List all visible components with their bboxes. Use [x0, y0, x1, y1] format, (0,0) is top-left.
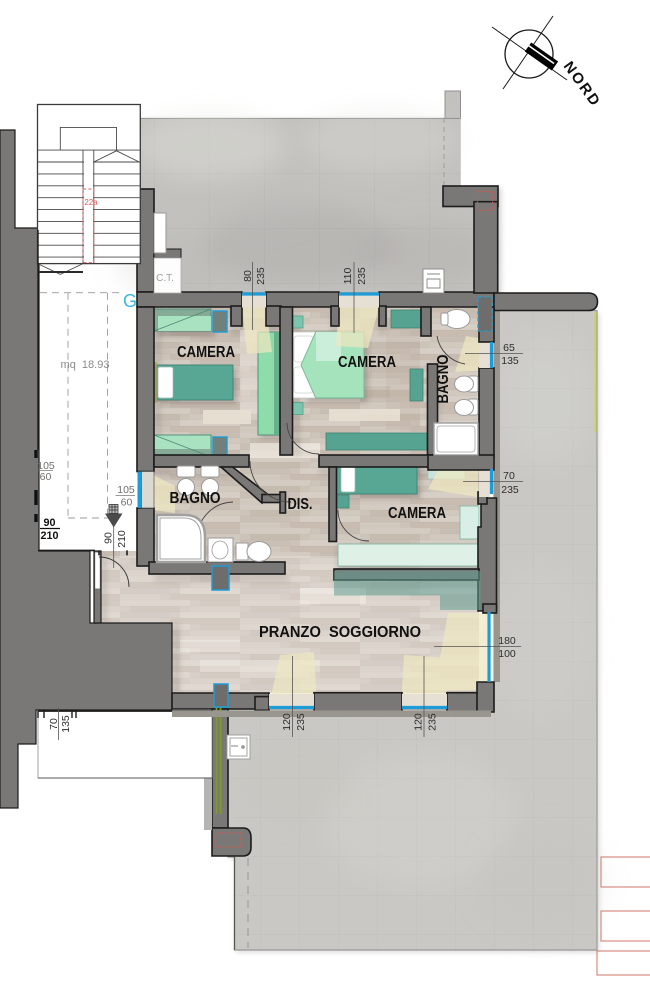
svg-text:135: 135: [60, 715, 72, 733]
svg-text:105: 105: [117, 484, 135, 496]
svg-text:60: 60: [121, 497, 133, 509]
svg-text:BAGNO: BAGNO: [170, 490, 221, 507]
svg-text:210: 210: [40, 530, 58, 542]
svg-text:235: 235: [427, 713, 439, 731]
svg-text:110: 110: [342, 267, 354, 284]
svg-text:65: 65: [503, 342, 515, 354]
svg-text:G: G: [123, 291, 137, 311]
svg-text:BAGNO: BAGNO: [435, 355, 452, 404]
svg-text:CAMERA: CAMERA: [338, 354, 396, 371]
svg-text:120: 120: [281, 713, 293, 731]
svg-text:C.T.: C.T.: [156, 273, 174, 284]
svg-text:235: 235: [356, 267, 368, 285]
svg-text:90: 90: [103, 532, 115, 544]
svg-text:135: 135: [501, 355, 519, 367]
svg-text:180: 180: [498, 635, 516, 647]
svg-text:70: 70: [503, 470, 515, 482]
svg-text:120: 120: [413, 713, 425, 731]
svg-text:60: 60: [40, 471, 52, 483]
svg-text:CAMERA: CAMERA: [388, 505, 446, 522]
svg-text:235: 235: [295, 713, 307, 731]
svg-text:mq 18.93: mq 18.93: [61, 359, 110, 371]
svg-text:210: 210: [116, 530, 128, 548]
svg-text:235: 235: [255, 267, 267, 285]
svg-text:235: 235: [501, 484, 519, 496]
svg-text:90: 90: [43, 517, 55, 529]
svg-text:22a: 22a: [84, 198, 98, 207]
svg-text:100: 100: [498, 648, 516, 660]
svg-text:PRANZO SOGGIORNO: PRANZO SOGGIORNO: [259, 624, 421, 641]
svg-text:CAMERA: CAMERA: [177, 344, 235, 361]
svg-text:DIS.: DIS.: [288, 496, 313, 513]
